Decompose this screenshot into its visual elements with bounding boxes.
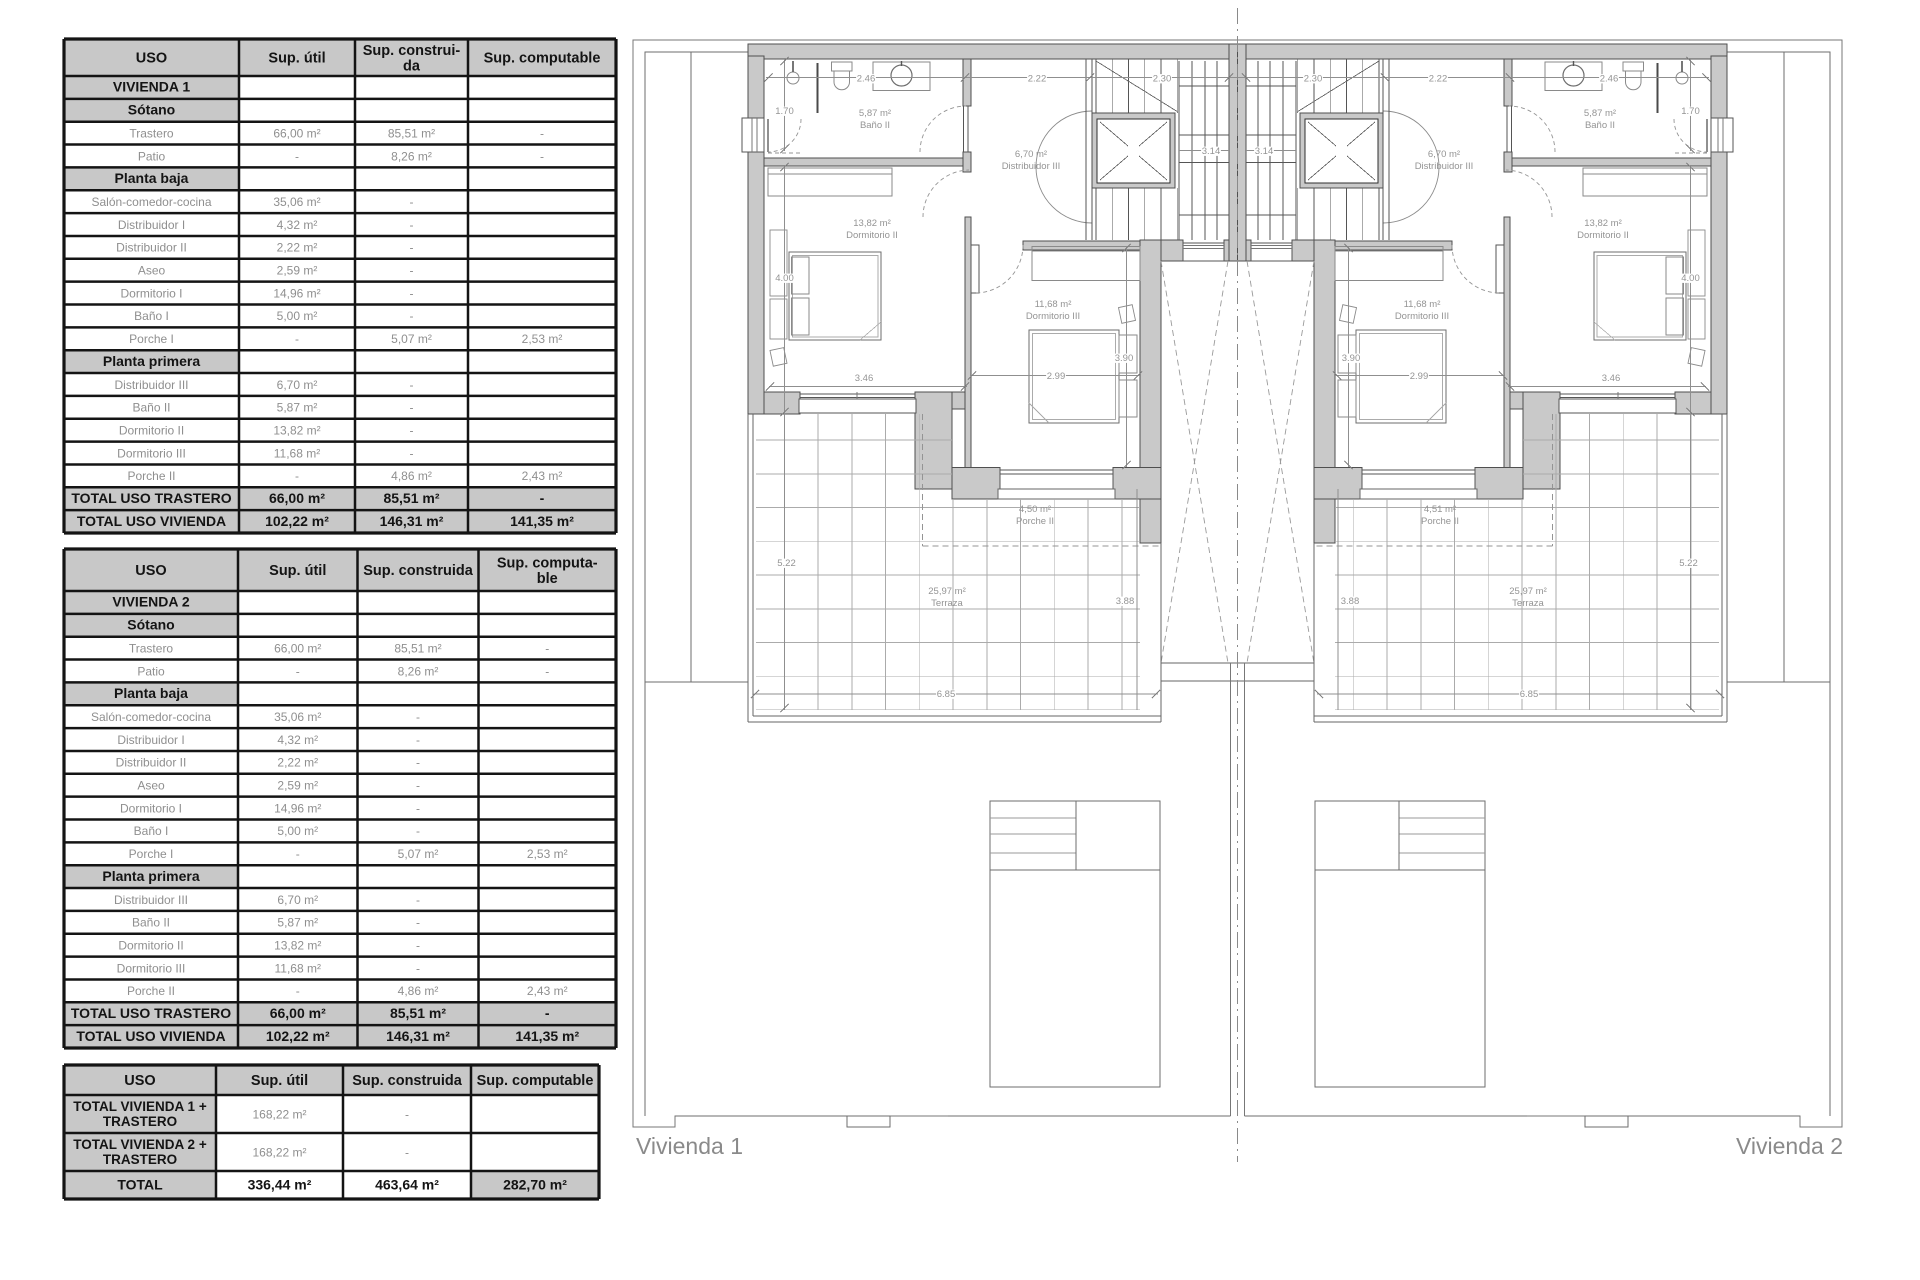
svg-text:Sup. útil: Sup. útil bbox=[268, 51, 325, 67]
svg-text:6.85: 6.85 bbox=[937, 689, 956, 700]
svg-text:3.14: 3.14 bbox=[1202, 146, 1221, 157]
svg-text:Distribuidor II: Distribuidor II bbox=[116, 756, 187, 770]
svg-text:6,70 m²: 6,70 m² bbox=[1428, 149, 1460, 160]
svg-text:146,31 m²: 146,31 m² bbox=[380, 513, 444, 529]
svg-text:-: - bbox=[416, 938, 420, 952]
svg-text:ble: ble bbox=[537, 571, 558, 587]
svg-text:Porche I: Porche I bbox=[129, 847, 174, 861]
svg-text:168,22 m²: 168,22 m² bbox=[252, 1107, 306, 1121]
svg-text:Sup. computable: Sup. computable bbox=[477, 1073, 594, 1089]
svg-text:-: - bbox=[410, 446, 414, 460]
svg-text:Dormitorio I: Dormitorio I bbox=[120, 801, 182, 815]
svg-text:2,22 m²: 2,22 m² bbox=[277, 241, 318, 255]
svg-text:2.99: 2.99 bbox=[1410, 371, 1429, 382]
svg-text:11,68 m²: 11,68 m² bbox=[1404, 299, 1441, 310]
svg-text:-: - bbox=[410, 241, 414, 255]
svg-text:-: - bbox=[416, 733, 420, 747]
svg-text:4,32 m²: 4,32 m² bbox=[277, 733, 318, 747]
svg-text:TOTAL VIVIENDA 1 +: TOTAL VIVIENDA 1 + bbox=[73, 1099, 207, 1114]
svg-text:Salón-comedor-cocina: Salón-comedor-cocina bbox=[91, 195, 211, 209]
svg-text:-: - bbox=[410, 309, 414, 323]
svg-text:5,00 m²: 5,00 m² bbox=[277, 309, 318, 323]
svg-text:Dormitorio II: Dormitorio II bbox=[1577, 230, 1629, 241]
svg-text:Porche I: Porche I bbox=[129, 332, 174, 346]
svg-text:2.46: 2.46 bbox=[1600, 74, 1619, 85]
svg-text:TOTAL USO VIVIENDA: TOTAL USO VIVIENDA bbox=[77, 513, 226, 529]
svg-text:Planta primera: Planta primera bbox=[102, 868, 199, 884]
svg-text:2,59 m²: 2,59 m² bbox=[277, 264, 318, 278]
svg-text:3.46: 3.46 bbox=[855, 373, 874, 384]
svg-text:Terraza: Terraza bbox=[1512, 598, 1544, 609]
svg-text:-: - bbox=[295, 332, 299, 346]
svg-text:Porche II: Porche II bbox=[1016, 516, 1054, 527]
svg-text:VIVIENDA 1: VIVIENDA 1 bbox=[113, 79, 190, 95]
svg-text:5,87 m²: 5,87 m² bbox=[1584, 108, 1616, 119]
svg-text:USO: USO bbox=[124, 1073, 155, 1089]
svg-text:141,35 m²: 141,35 m² bbox=[515, 1028, 579, 1044]
svg-text:66,00 m²: 66,00 m² bbox=[269, 490, 325, 506]
svg-text:5,07 m²: 5,07 m² bbox=[391, 332, 432, 346]
svg-text:-: - bbox=[296, 847, 300, 861]
svg-text:2.30: 2.30 bbox=[1153, 74, 1172, 85]
svg-text:Sup. útil: Sup. útil bbox=[251, 1073, 308, 1089]
svg-text:-: - bbox=[410, 264, 414, 278]
svg-text:14,96 m²: 14,96 m² bbox=[274, 801, 321, 815]
svg-text:85,51 m²: 85,51 m² bbox=[388, 126, 435, 140]
svg-text:4,86 m²: 4,86 m² bbox=[391, 469, 432, 483]
svg-text:USO: USO bbox=[136, 51, 167, 67]
svg-text:-: - bbox=[405, 1107, 409, 1121]
svg-text:-: - bbox=[410, 286, 414, 300]
svg-text:35,06 m²: 35,06 m² bbox=[273, 195, 320, 209]
svg-text:Planta baja: Planta baja bbox=[114, 685, 188, 701]
svg-text:66,00 m²: 66,00 m² bbox=[274, 641, 321, 655]
svg-text:5,87 m²: 5,87 m² bbox=[277, 916, 318, 930]
svg-text:2,59 m²: 2,59 m² bbox=[277, 779, 318, 793]
svg-text:4.00: 4.00 bbox=[1681, 273, 1700, 284]
svg-text:3.90: 3.90 bbox=[1342, 353, 1361, 364]
svg-text:Aseo: Aseo bbox=[138, 264, 166, 278]
svg-text:-: - bbox=[410, 218, 414, 232]
svg-text:Baño I: Baño I bbox=[134, 824, 169, 838]
svg-text:4,51 m²: 4,51 m² bbox=[1424, 504, 1456, 515]
svg-text:TRASTERO: TRASTERO bbox=[103, 1152, 177, 1167]
svg-text:Porche II: Porche II bbox=[127, 469, 175, 483]
svg-text:TOTAL VIVIENDA 2 +: TOTAL VIVIENDA 2 + bbox=[73, 1137, 207, 1152]
svg-text:Distribuidor I: Distribuidor I bbox=[117, 733, 184, 747]
svg-text:4,86 m²: 4,86 m² bbox=[398, 984, 439, 998]
svg-text:Planta primera: Planta primera bbox=[103, 353, 200, 369]
svg-text:85,51 m²: 85,51 m² bbox=[390, 1005, 446, 1021]
svg-text:TOTAL: TOTAL bbox=[117, 1176, 163, 1192]
svg-text:2.46: 2.46 bbox=[857, 74, 876, 85]
svg-text:-: - bbox=[296, 984, 300, 998]
svg-text:-: - bbox=[545, 641, 549, 655]
svg-text:-: - bbox=[416, 710, 420, 724]
svg-text:141,35 m²: 141,35 m² bbox=[510, 513, 574, 529]
svg-text:TOTAL USO TRASTERO: TOTAL USO TRASTERO bbox=[71, 1005, 231, 1021]
svg-text:2.22: 2.22 bbox=[1028, 74, 1047, 85]
svg-text:Porche II: Porche II bbox=[1421, 516, 1459, 527]
svg-text:-: - bbox=[410, 423, 414, 437]
svg-text:102,22 m²: 102,22 m² bbox=[266, 1028, 330, 1044]
svg-text:25,97 m²: 25,97 m² bbox=[1509, 586, 1547, 597]
svg-text:TOTAL USO TRASTERO: TOTAL USO TRASTERO bbox=[71, 490, 231, 506]
svg-text:-: - bbox=[545, 1005, 550, 1021]
svg-text:Sup. construida: Sup. construida bbox=[363, 563, 474, 579]
svg-text:85,51 m²: 85,51 m² bbox=[394, 641, 441, 655]
svg-text:4,50 m²: 4,50 m² bbox=[1019, 504, 1051, 515]
svg-text:2,43 m²: 2,43 m² bbox=[527, 984, 568, 998]
svg-text:11,68 m²: 11,68 m² bbox=[1035, 299, 1072, 310]
svg-text:4,32 m²: 4,32 m² bbox=[277, 218, 318, 232]
svg-text:Vivienda 1: Vivienda 1 bbox=[636, 1133, 743, 1159]
svg-text:66,00 m²: 66,00 m² bbox=[270, 1005, 326, 1021]
svg-text:13,82 m²: 13,82 m² bbox=[853, 218, 891, 229]
svg-text:13,82 m²: 13,82 m² bbox=[273, 423, 320, 437]
svg-text:Dormitorio III: Dormitorio III bbox=[117, 446, 186, 460]
svg-text:5,07 m²: 5,07 m² bbox=[398, 847, 439, 861]
svg-text:Baño II: Baño II bbox=[860, 120, 890, 131]
svg-text:3.14: 3.14 bbox=[1255, 146, 1274, 157]
svg-text:-: - bbox=[416, 961, 420, 975]
svg-text:-: - bbox=[545, 664, 549, 678]
svg-text:14,96 m²: 14,96 m² bbox=[273, 286, 320, 300]
svg-text:Salón-comedor-cocina: Salón-comedor-cocina bbox=[91, 710, 211, 724]
svg-text:-: - bbox=[416, 756, 420, 770]
svg-text:-: - bbox=[410, 378, 414, 392]
svg-text:6.85: 6.85 bbox=[1520, 689, 1539, 700]
svg-text:-: - bbox=[416, 779, 420, 793]
svg-text:-: - bbox=[416, 801, 420, 815]
svg-text:Distribuidor III: Distribuidor III bbox=[1002, 161, 1061, 172]
svg-text:11,68 m²: 11,68 m² bbox=[275, 961, 321, 975]
svg-text:TOTAL USO VIVIENDA: TOTAL USO VIVIENDA bbox=[76, 1028, 225, 1044]
svg-text:Terraza: Terraza bbox=[931, 598, 963, 609]
svg-text:2.30: 2.30 bbox=[1304, 74, 1323, 85]
svg-text:-: - bbox=[295, 149, 299, 163]
svg-text:2.22: 2.22 bbox=[1429, 74, 1448, 85]
svg-text:35,06 m²: 35,06 m² bbox=[274, 710, 321, 724]
svg-text:Porche II: Porche II bbox=[127, 984, 175, 998]
svg-text:13,82 m²: 13,82 m² bbox=[1584, 218, 1622, 229]
svg-text:282,70 m²: 282,70 m² bbox=[503, 1176, 567, 1192]
svg-text:-: - bbox=[416, 824, 420, 838]
svg-text:1.70: 1.70 bbox=[775, 106, 794, 117]
svg-text:6,70 m²: 6,70 m² bbox=[277, 378, 318, 392]
svg-text:3.88: 3.88 bbox=[1341, 596, 1360, 607]
svg-text:Baño II: Baño II bbox=[132, 916, 170, 930]
svg-text:102,22 m²: 102,22 m² bbox=[265, 513, 329, 529]
svg-text:3.88: 3.88 bbox=[1116, 596, 1135, 607]
svg-text:168,22 m²: 168,22 m² bbox=[252, 1145, 306, 1159]
svg-text:2.99: 2.99 bbox=[1047, 371, 1066, 382]
svg-text:4.00: 4.00 bbox=[775, 273, 794, 284]
svg-text:Dormitorio II: Dormitorio II bbox=[118, 938, 183, 952]
svg-text:-: - bbox=[405, 1145, 409, 1159]
svg-text:85,51 m²: 85,51 m² bbox=[383, 490, 439, 506]
svg-text:Sup. computa-: Sup. computa- bbox=[497, 556, 598, 572]
svg-text:Planta baja: Planta baja bbox=[115, 170, 189, 186]
svg-text:Dormitorio III: Dormitorio III bbox=[117, 961, 186, 975]
svg-text:Baño II: Baño II bbox=[1585, 120, 1615, 131]
svg-text:-: - bbox=[296, 664, 300, 678]
svg-text:Baño I: Baño I bbox=[134, 309, 169, 323]
svg-text:-: - bbox=[540, 126, 544, 140]
svg-text:da: da bbox=[403, 59, 421, 75]
svg-text:TRASTERO: TRASTERO bbox=[103, 1114, 177, 1129]
svg-text:25,97 m²: 25,97 m² bbox=[928, 586, 966, 597]
svg-text:Dormitorio I: Dormitorio I bbox=[120, 286, 182, 300]
svg-text:Distribuidor I: Distribuidor I bbox=[118, 218, 185, 232]
svg-text:Distribuidor III: Distribuidor III bbox=[114, 893, 188, 907]
svg-text:Distribuidor III: Distribuidor III bbox=[114, 378, 188, 392]
svg-text:6,70 m²: 6,70 m² bbox=[1015, 149, 1047, 160]
svg-text:5.22: 5.22 bbox=[777, 558, 796, 569]
svg-text:8,26 m²: 8,26 m² bbox=[391, 149, 432, 163]
svg-text:-: - bbox=[410, 195, 414, 209]
svg-text:Dormitorio III: Dormitorio III bbox=[1026, 311, 1080, 322]
svg-text:-: - bbox=[540, 149, 544, 163]
svg-text:3.90: 3.90 bbox=[1115, 353, 1134, 364]
svg-text:Dormitorio II: Dormitorio II bbox=[119, 423, 184, 437]
svg-text:2,53 m²: 2,53 m² bbox=[522, 332, 563, 346]
svg-text:Aseo: Aseo bbox=[137, 779, 165, 793]
svg-text:Patio: Patio bbox=[138, 149, 166, 163]
svg-text:13,82 m²: 13,82 m² bbox=[274, 938, 321, 952]
svg-text:VIVIENDA 2: VIVIENDA 2 bbox=[112, 594, 189, 610]
svg-text:6,70 m²: 6,70 m² bbox=[277, 893, 318, 907]
svg-text:-: - bbox=[416, 893, 420, 907]
svg-text:Dormitorio II: Dormitorio II bbox=[846, 230, 898, 241]
svg-text:USO: USO bbox=[135, 563, 166, 579]
svg-text:-: - bbox=[416, 916, 420, 930]
svg-text:Sótano: Sótano bbox=[128, 102, 175, 118]
svg-text:2,43 m²: 2,43 m² bbox=[522, 469, 563, 483]
svg-text:5,87 m²: 5,87 m² bbox=[277, 401, 318, 415]
svg-text:2,22 m²: 2,22 m² bbox=[277, 756, 318, 770]
svg-text:Sup. útil: Sup. útil bbox=[269, 563, 326, 579]
svg-text:5,00 m²: 5,00 m² bbox=[277, 824, 318, 838]
svg-text:146,31 m²: 146,31 m² bbox=[386, 1028, 450, 1044]
svg-text:11,68 m²: 11,68 m² bbox=[274, 446, 320, 460]
svg-text:Sup. construi-: Sup. construi- bbox=[363, 43, 461, 59]
svg-text:463,64 m²: 463,64 m² bbox=[375, 1176, 439, 1192]
svg-text:66,00 m²: 66,00 m² bbox=[273, 126, 320, 140]
svg-text:Distribuidor II: Distribuidor II bbox=[116, 241, 187, 255]
svg-text:Trastero: Trastero bbox=[129, 641, 174, 655]
svg-text:Sup. construida: Sup. construida bbox=[352, 1073, 463, 1089]
svg-text:Sup. computable: Sup. computable bbox=[484, 51, 601, 67]
svg-text:Vivienda 2: Vivienda 2 bbox=[1736, 1133, 1843, 1159]
svg-text:8,26 m²: 8,26 m² bbox=[398, 664, 439, 678]
svg-text:Sótano: Sótano bbox=[127, 617, 174, 633]
svg-text:Patio: Patio bbox=[137, 664, 165, 678]
svg-text:5,87 m²: 5,87 m² bbox=[859, 108, 891, 119]
svg-text:5.22: 5.22 bbox=[1679, 558, 1698, 569]
svg-text:-: - bbox=[540, 490, 545, 506]
svg-text:1.70: 1.70 bbox=[1681, 106, 1700, 117]
svg-text:-: - bbox=[295, 469, 299, 483]
svg-text:Dormitorio III: Dormitorio III bbox=[1395, 311, 1449, 322]
svg-text:-: - bbox=[410, 401, 414, 415]
svg-text:336,44 m²: 336,44 m² bbox=[248, 1176, 312, 1192]
svg-text:2,53 m²: 2,53 m² bbox=[527, 847, 568, 861]
svg-text:3.46: 3.46 bbox=[1602, 373, 1621, 384]
svg-text:Distribuidor III: Distribuidor III bbox=[1415, 161, 1474, 172]
svg-text:Baño II: Baño II bbox=[132, 401, 170, 415]
svg-text:Trastero: Trastero bbox=[129, 126, 174, 140]
